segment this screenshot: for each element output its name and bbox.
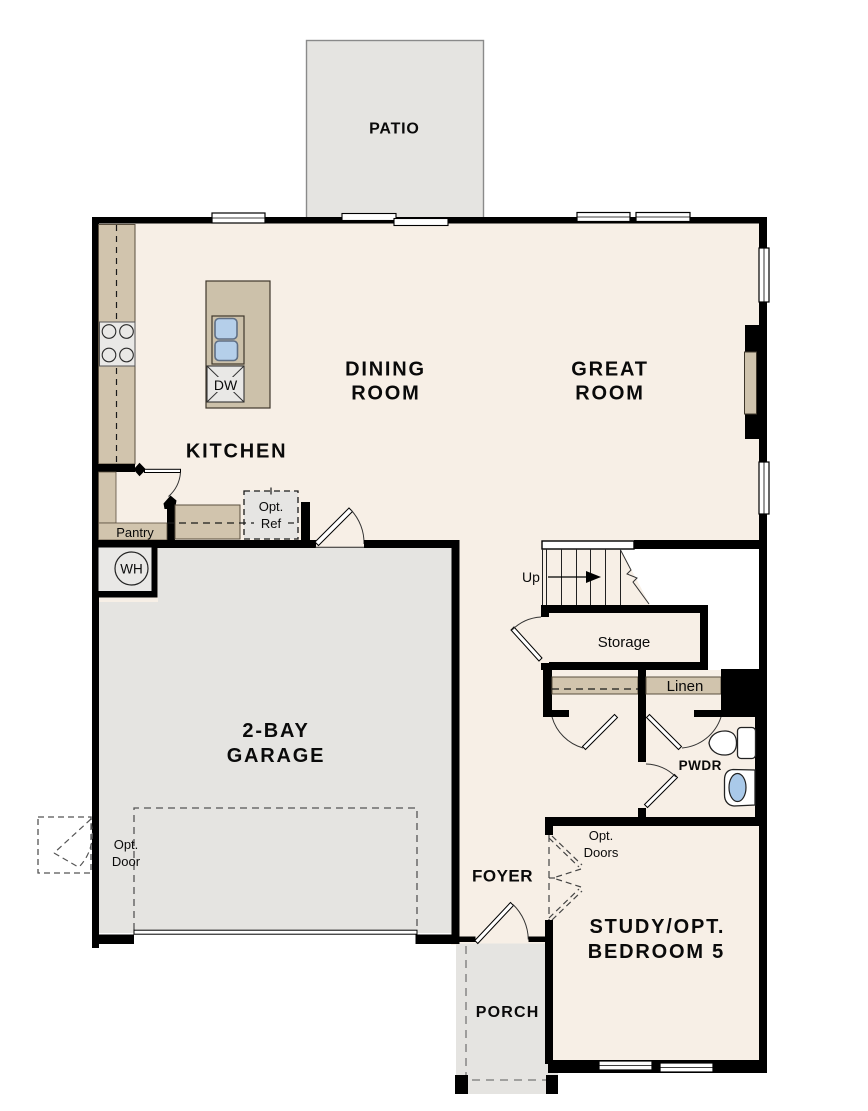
svg-text:FOYER: FOYER	[472, 867, 533, 886]
svg-text:Opt.: Opt.	[259, 499, 284, 514]
svg-text:PWDR: PWDR	[679, 758, 722, 773]
svg-text:Storage: Storage	[598, 634, 651, 651]
svg-text:Door: Door	[112, 854, 141, 869]
svg-text:Linen: Linen	[667, 678, 704, 695]
svg-text:Ref: Ref	[261, 516, 282, 531]
svg-text:GREAT: GREAT	[571, 359, 649, 381]
svg-text:DW: DW	[214, 377, 238, 393]
svg-text:Pantry: Pantry	[116, 525, 154, 540]
svg-text:Doors: Doors	[584, 845, 619, 860]
svg-text:ROOM: ROOM	[351, 383, 420, 405]
svg-text:BEDROOM 5: BEDROOM 5	[588, 941, 725, 963]
svg-text:Opt.: Opt.	[589, 828, 614, 843]
svg-text:WH: WH	[120, 562, 143, 577]
svg-text:PATIO: PATIO	[369, 121, 420, 138]
svg-text:Opt.: Opt.	[114, 837, 139, 852]
svg-text:Up: Up	[522, 569, 540, 585]
svg-text:KITCHEN: KITCHEN	[186, 441, 288, 463]
svg-text:PORCH: PORCH	[476, 1004, 540, 1021]
svg-text:2-BAY: 2-BAY	[242, 720, 309, 742]
svg-text:DINING: DINING	[345, 359, 426, 381]
svg-text:ROOM: ROOM	[575, 383, 644, 405]
svg-text:GARAGE: GARAGE	[227, 745, 326, 767]
svg-text:STUDY/OPT.: STUDY/OPT.	[590, 916, 726, 938]
